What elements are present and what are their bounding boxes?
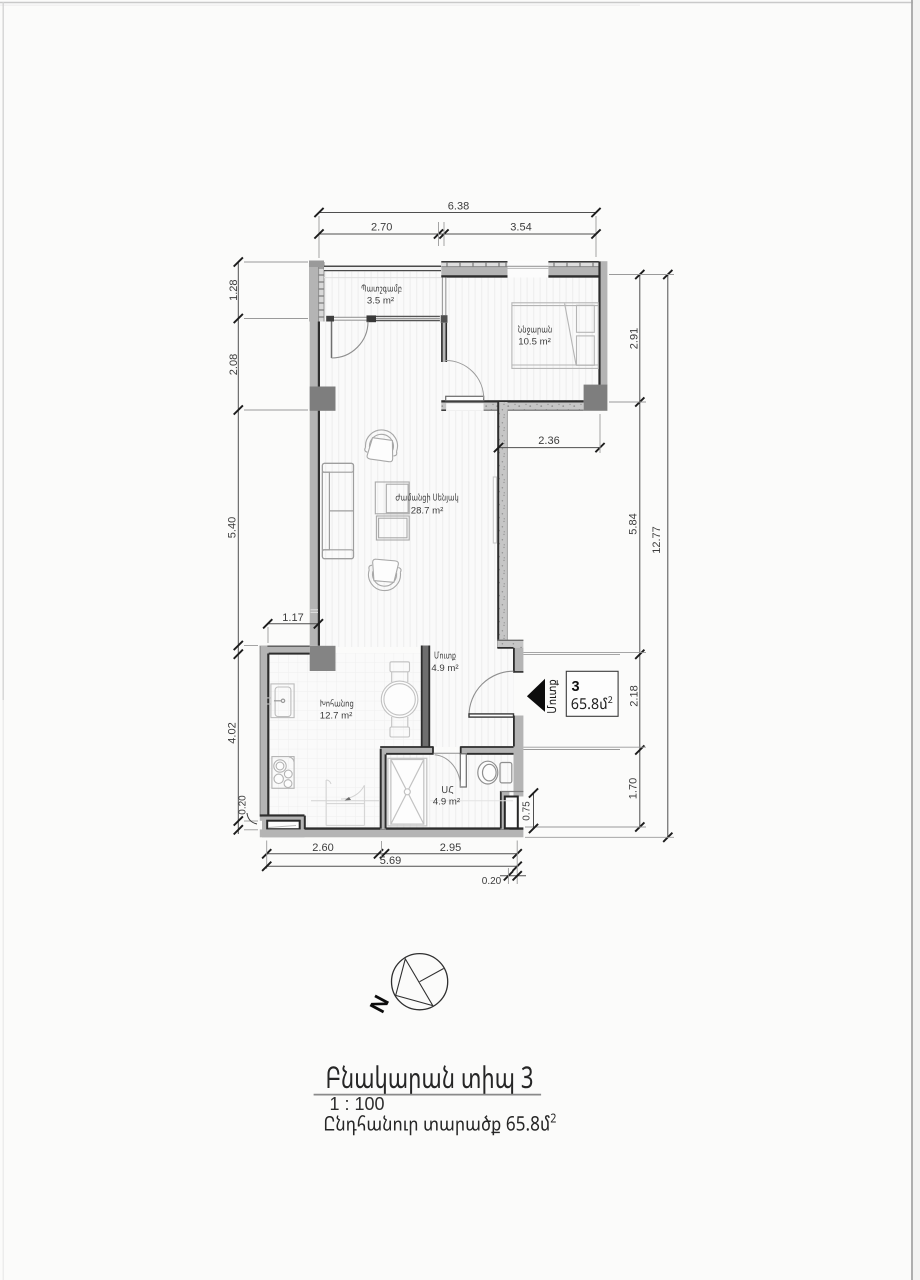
- svg-text:2.91: 2.91: [628, 328, 640, 349]
- svg-text:1.17: 1.17: [282, 612, 303, 624]
- svg-text:3.5 m²: 3.5 m²: [367, 296, 395, 307]
- svg-text:0.20: 0.20: [238, 795, 249, 815]
- svg-text:2.60: 2.60: [312, 842, 333, 854]
- svg-text:2.70: 2.70: [371, 222, 392, 234]
- svg-text:10.5 m²: 10.5 m²: [518, 337, 551, 348]
- svg-text:5.40: 5.40: [226, 517, 238, 538]
- svg-text:2.18: 2.18: [628, 685, 640, 706]
- svg-text:28.7 m²: 28.7 m²: [411, 506, 444, 517]
- svg-text:1 : 100: 1 : 100: [330, 1094, 385, 1114]
- svg-text:4.02: 4.02: [226, 722, 238, 743]
- svg-text:3.54: 3.54: [510, 222, 531, 234]
- svg-text:1.28: 1.28: [228, 279, 240, 300]
- svg-text:4.9 m²: 4.9 m²: [431, 663, 459, 674]
- svg-text:0.20: 0.20: [482, 876, 502, 887]
- svg-text:4.9 m²: 4.9 m²: [433, 797, 461, 808]
- svg-text:2.95: 2.95: [440, 842, 461, 854]
- svg-text:5.84: 5.84: [627, 513, 639, 534]
- svg-text:2.08: 2.08: [228, 354, 240, 375]
- svg-text:1.70: 1.70: [628, 778, 640, 799]
- svg-text:12.7 m²: 12.7 m²: [320, 711, 353, 722]
- svg-text:2.36: 2.36: [538, 435, 559, 447]
- svg-text:5.69: 5.69: [380, 855, 401, 867]
- svg-text:6.38: 6.38: [448, 201, 469, 213]
- svg-text:3: 3: [572, 679, 580, 695]
- svg-text:0.75: 0.75: [522, 801, 533, 821]
- svg-text:12.77: 12.77: [651, 526, 663, 554]
